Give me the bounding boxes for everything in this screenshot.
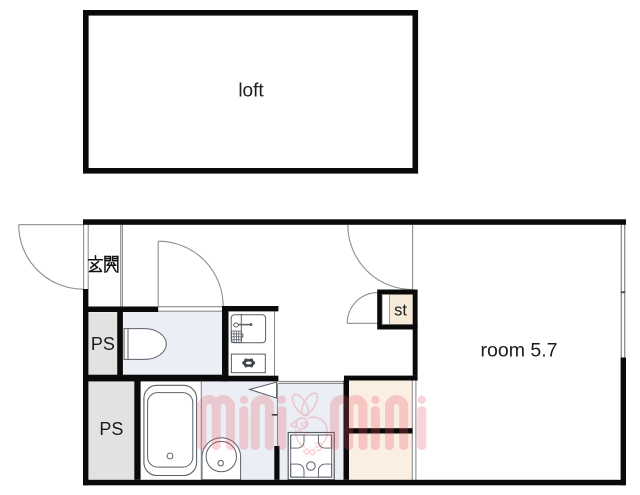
svg-text:loft: loft bbox=[238, 81, 264, 102]
svg-text:PS: PS bbox=[99, 419, 123, 439]
svg-text:room 5.7: room 5.7 bbox=[481, 340, 558, 362]
svg-text:st: st bbox=[394, 301, 407, 319]
svg-text:PS: PS bbox=[91, 334, 115, 354]
